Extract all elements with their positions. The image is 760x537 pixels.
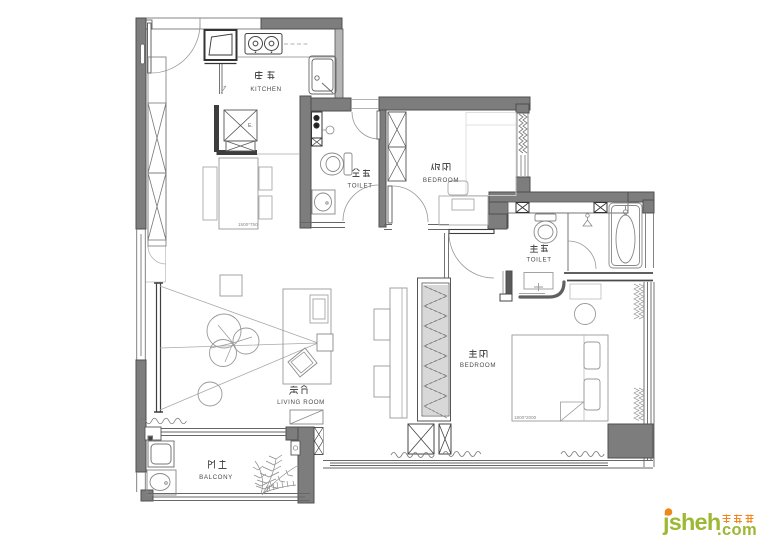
svg-text:BEDROOM: BEDROOM <box>423 177 459 184</box>
svg-text:1800*2000: 1800*2000 <box>514 415 537 420</box>
svg-text:LIVING ROOM: LIVING ROOM <box>277 399 325 406</box>
svg-text:.com: .com <box>717 521 757 537</box>
svg-text:KITCHEN: KITCHEN <box>250 86 281 93</box>
svg-text:E.: E. <box>248 123 253 129</box>
svg-text:1500*750: 1500*750 <box>238 222 258 227</box>
svg-text:TOILET: TOILET <box>347 183 372 190</box>
svg-text:BEDROOM: BEDROOM <box>460 362 496 369</box>
svg-text:BALCONY: BALCONY <box>199 474 233 481</box>
svg-text:TOILET: TOILET <box>526 257 551 264</box>
